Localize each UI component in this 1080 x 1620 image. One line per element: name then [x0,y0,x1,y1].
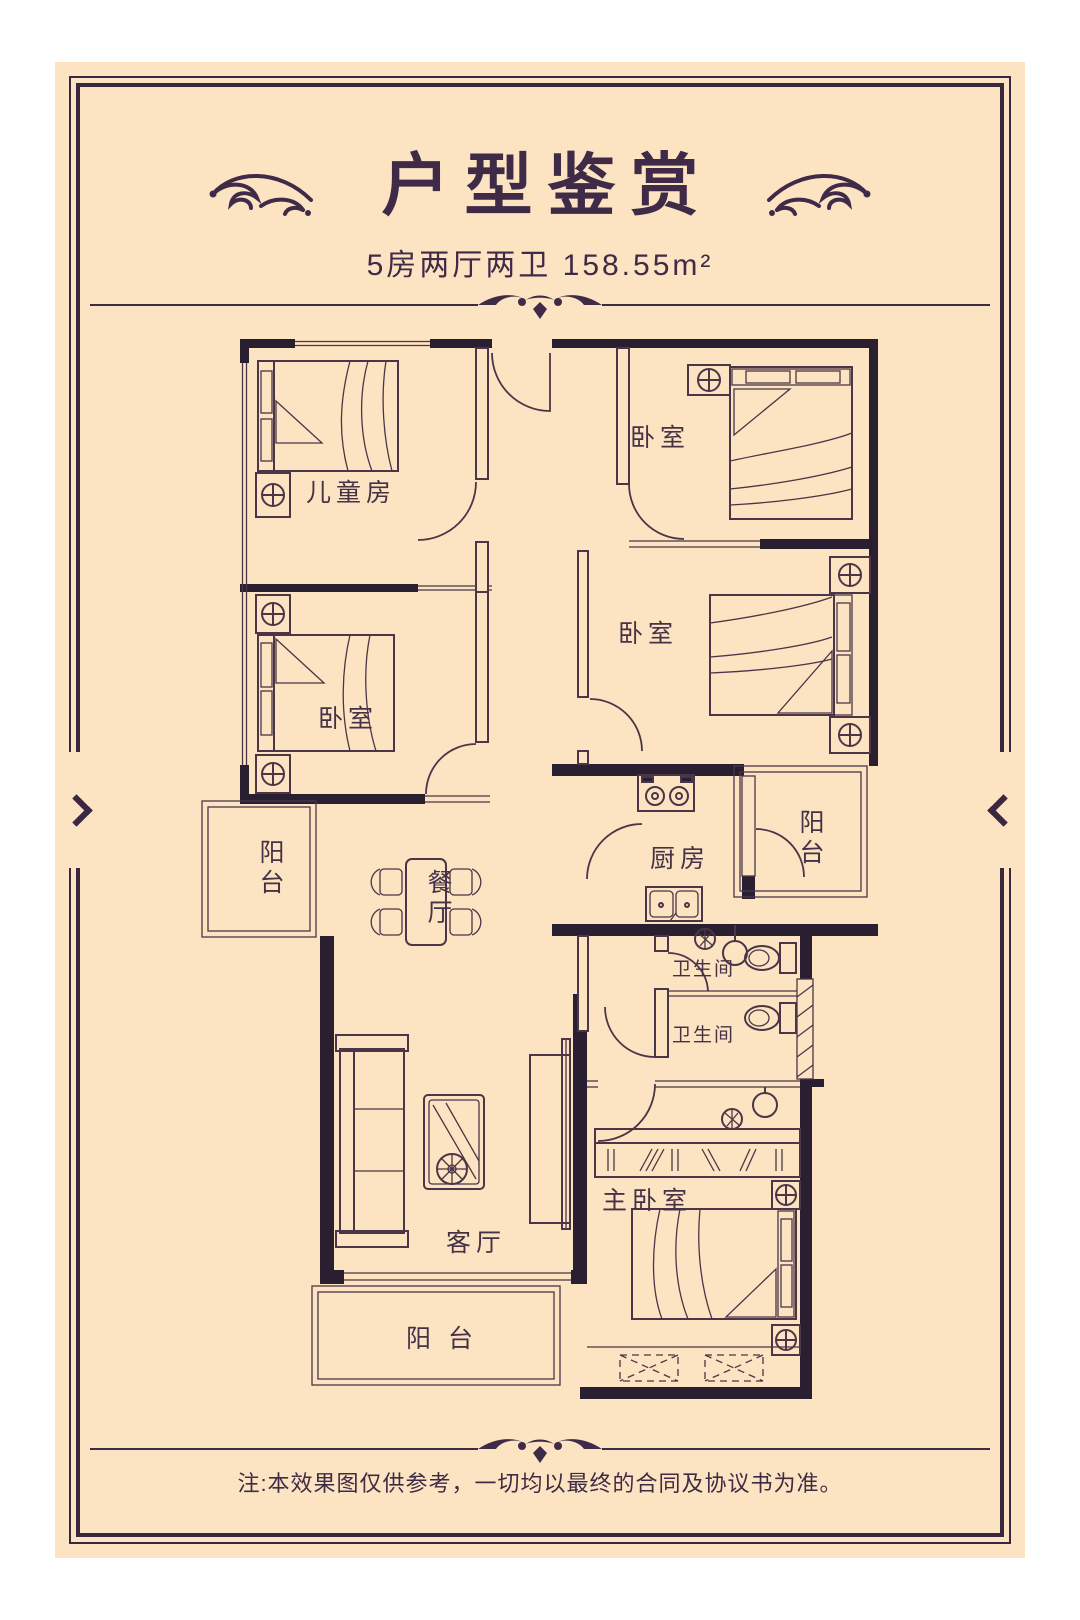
room-label-balcony-left: 阳台 [256,839,284,899]
room-label-children: 儿童房 [306,479,396,507]
floor-plan: 儿童房 卧室 卧室 卧室 厨房 阳台 阳台 餐厅 卫生间 卫生间 主卧室 客厅 … [200,338,880,1400]
poster-background: { "poster": { "title": "户型鉴赏", "subtitle… [0,0,1080,1620]
stove-icon [638,775,694,811]
page-title: 户型鉴赏 [55,130,1025,229]
top-divider-ornament [90,290,990,320]
room-label-dining: 餐厅 [424,869,453,929]
bottom-divider-ornament [90,1434,990,1464]
room-label-bedroom-tr: 卧室 [630,424,690,452]
bed-icon [256,595,394,793]
toilet-icon [745,943,796,973]
room-label-balcony-bottom: 阳 台 [406,1325,478,1353]
poster-card: 户型鉴赏 5房两厅两卫 158.55m² [55,62,1025,1558]
room-label-bathroom-lower: 卫生间 [672,1024,735,1046]
coffee-table-icon [424,1095,484,1189]
shower-icon [722,1087,777,1129]
layout-summary: 5房两厅两卫 158.55m² [55,240,1025,284]
kitchen-sink-icon [646,887,702,921]
room-label-living: 客厅 [446,1229,506,1257]
balcony-frames [202,766,867,1385]
bed-icon [710,557,870,753]
wardrobe-icon [595,1129,800,1177]
room-label-bedroom-mr: 卧室 [618,620,678,648]
room-label-balcony-right: 阳台 [796,809,824,869]
flourish-right-icon [765,162,875,228]
room-label-bathroom-upper: 卫生间 [672,958,735,980]
bed-icon [688,365,852,519]
room-label-master: 主卧室 [602,1187,692,1215]
sofa-icon [336,1035,408,1247]
flourish-left-icon [205,162,315,228]
tv-cabinet-icon [530,1039,570,1229]
toilet-icon [745,1003,796,1033]
room-labels: 儿童房 卧室 卧室 卧室 厨房 阳台 阳台 餐厅 卫生间 卫生间 主卧室 客厅 … [256,424,824,1353]
room-label-bedroom-ml: 卧室 [318,705,378,733]
room-label-kitchen: 厨房 [650,845,710,873]
disclaimer-note: 注:本效果图仅供参考，一切均以最终的合同及协议书为准。 [55,1466,1025,1498]
